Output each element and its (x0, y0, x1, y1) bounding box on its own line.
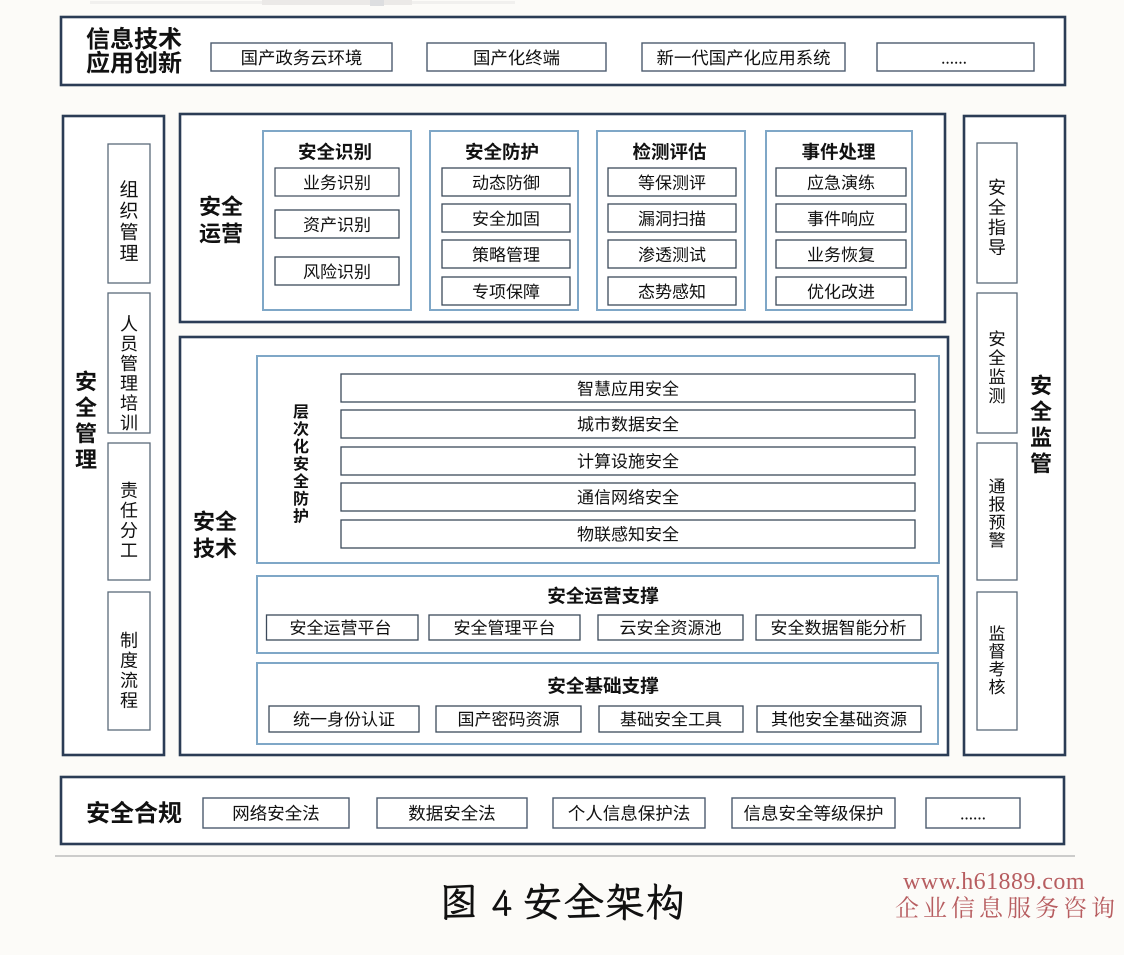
svg-text:www.h61889.com: www.h61889.com (903, 869, 1085, 895)
